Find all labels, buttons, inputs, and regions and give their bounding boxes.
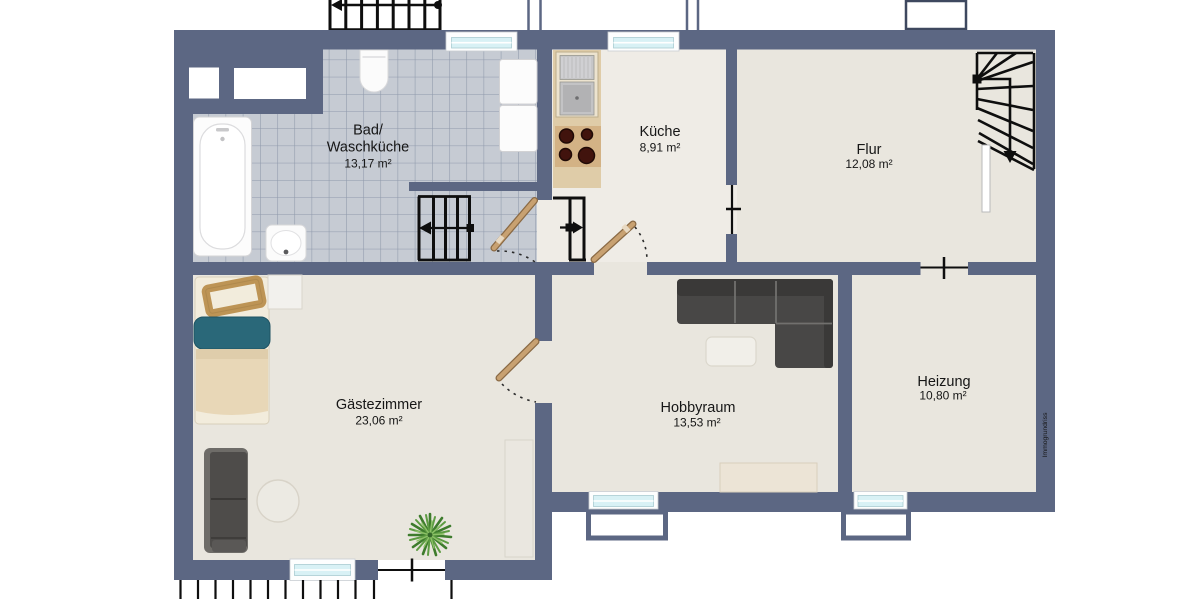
svg-text:13,53 m²: 13,53 m² <box>673 416 720 430</box>
svg-text:Waschküche: Waschküche <box>327 140 409 156</box>
svg-text:23,06 m²: 23,06 m² <box>355 414 402 428</box>
svg-text:Bad/: Bad/ <box>353 123 384 139</box>
svg-text:Immogrundriss: Immogrundriss <box>1042 412 1049 458</box>
svg-text:12,08 m²: 12,08 m² <box>845 157 892 171</box>
svg-text:13,17 m²: 13,17 m² <box>344 157 391 171</box>
svg-text:Hobbyraum: Hobbyraum <box>661 400 736 416</box>
svg-text:Gästezimmer: Gästezimmer <box>336 397 422 413</box>
svg-text:Flur: Flur <box>857 142 882 158</box>
svg-text:8,91 m²: 8,91 m² <box>640 141 681 155</box>
svg-text:10,80 m²: 10,80 m² <box>919 389 966 403</box>
svg-text:Küche: Küche <box>639 124 680 140</box>
